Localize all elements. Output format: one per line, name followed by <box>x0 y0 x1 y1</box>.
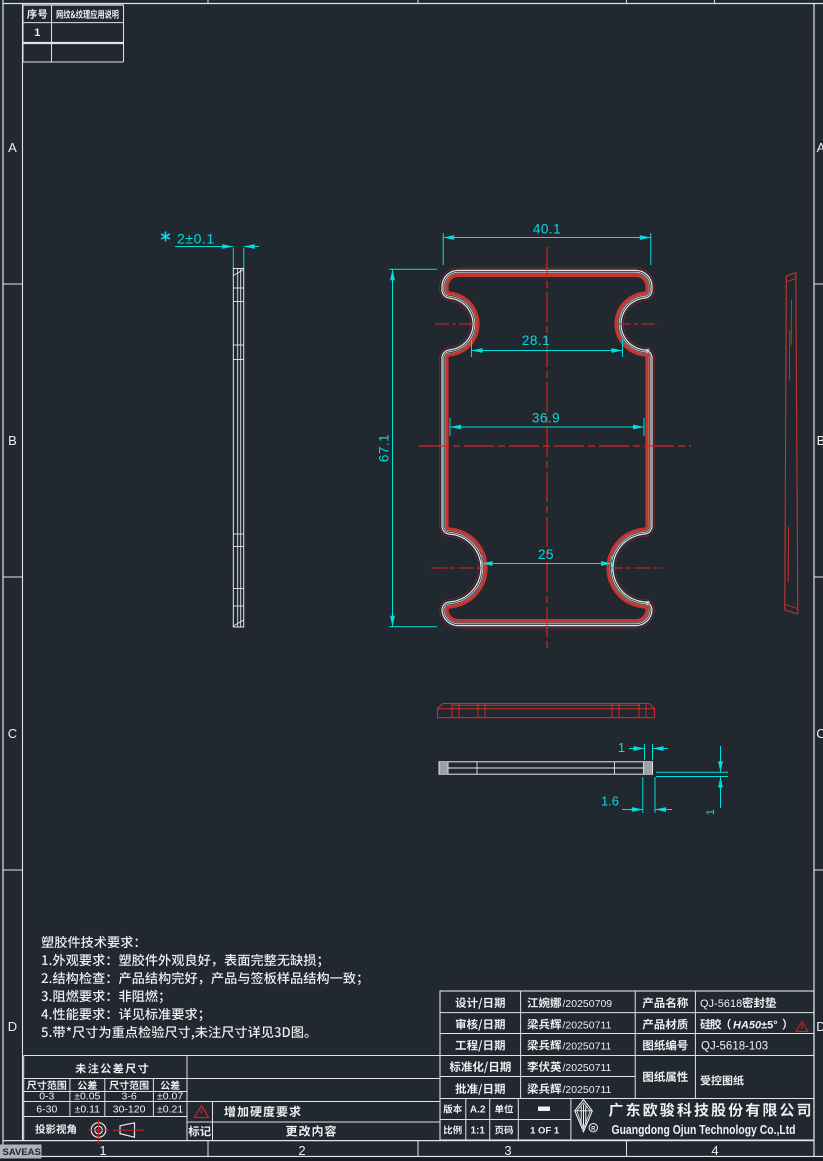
svg-text:QJ-5618: QJ-5618 <box>700 998 742 1010</box>
svg-text:Guangdong Ojun Technology Co.,: Guangdong Ojun Technology Co.,Ltd <box>612 1123 796 1137</box>
svg-text:1.6: 1.6 <box>601 794 619 809</box>
svg-text:±0.11: ±0.11 <box>75 1104 101 1116</box>
svg-text:C: C <box>816 726 823 741</box>
svg-text:40.1: 40.1 <box>533 222 561 237</box>
svg-text:D: D <box>8 1019 17 1034</box>
svg-text:30-120: 30-120 <box>113 1104 146 1116</box>
svg-text:/20250709: /20250709 <box>563 998 613 1010</box>
svg-text:67.1: 67.1 <box>377 434 392 462</box>
svg-text:1: 1 <box>705 809 717 815</box>
svg-text:±0.07: ±0.07 <box>157 1091 183 1103</box>
svg-text:/20250711: /20250711 <box>563 1062 612 1074</box>
svg-text:QJ-5618-103: QJ-5618-103 <box>701 1041 768 1053</box>
svg-text:1 OF 1: 1 OF 1 <box>530 1126 560 1137</box>
svg-text:SAVEAS: SAVEAS <box>3 1147 41 1158</box>
svg-text:1: 1 <box>34 27 40 39</box>
svg-text:±0.21: ±0.21 <box>157 1104 183 1116</box>
svg-text:C: C <box>8 726 17 741</box>
svg-text:3-6: 3-6 <box>122 1091 137 1103</box>
svg-text:2: 2 <box>298 1143 305 1158</box>
svg-text:/20250711: /20250711 <box>563 1084 612 1096</box>
svg-text:1: 1 <box>618 740 625 755</box>
svg-text:HA50±5°: HA50±5° <box>733 1020 778 1032</box>
svg-text:36.9: 36.9 <box>532 411 560 426</box>
svg-text:/20250711: /20250711 <box>563 1020 612 1032</box>
svg-text:0-3: 0-3 <box>39 1091 54 1103</box>
svg-text:3: 3 <box>504 1143 511 1158</box>
svg-text:±0.05: ±0.05 <box>74 1091 100 1103</box>
svg-text:R: R <box>591 1127 596 1133</box>
svg-text:2±0.1: 2±0.1 <box>177 231 215 247</box>
svg-text:4: 4 <box>711 1143 718 1158</box>
svg-text:A.2: A.2 <box>470 1105 486 1116</box>
svg-text:6-30: 6-30 <box>36 1104 57 1116</box>
svg-text:25: 25 <box>538 547 554 562</box>
svg-text:/20250711: /20250711 <box>563 1041 612 1053</box>
svg-text:A: A <box>817 140 823 155</box>
svg-text:A: A <box>8 140 17 155</box>
svg-text:1: 1 <box>99 1143 106 1158</box>
svg-text:B: B <box>817 433 823 448</box>
svg-text:28.1: 28.1 <box>522 333 550 348</box>
svg-text:D: D <box>816 1019 823 1034</box>
svg-text:1:1: 1:1 <box>470 1126 485 1137</box>
svg-text:B: B <box>8 433 17 448</box>
